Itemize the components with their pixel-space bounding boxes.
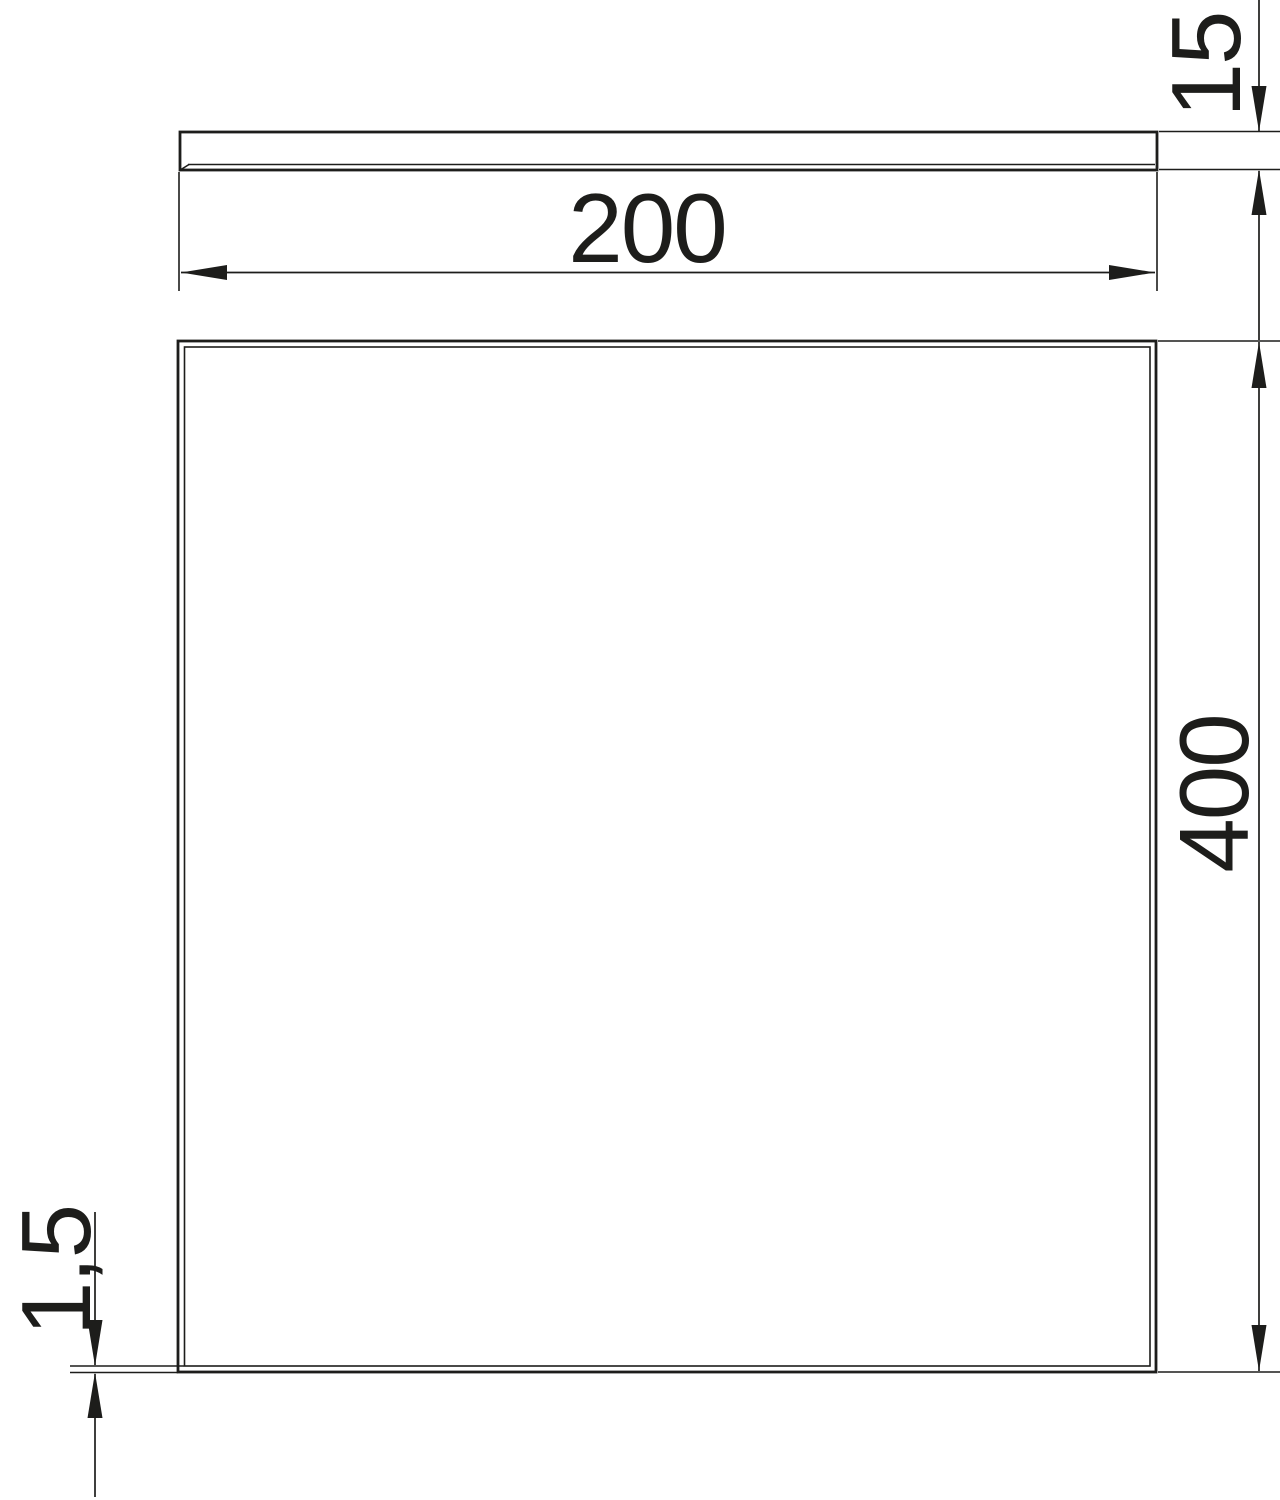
arrowhead-right bbox=[1109, 265, 1155, 280]
top-view bbox=[178, 341, 1156, 1372]
technical-drawing-page: 200 15 400 1,5 bbox=[0, 0, 1280, 1500]
dimension-length-400: 400 bbox=[1158, 341, 1280, 1372]
top-view-outer-outline bbox=[178, 341, 1156, 1372]
dimension-thickness-1-5: 1,5 bbox=[1, 1206, 184, 1497]
arrowhead-down bbox=[1252, 1325, 1267, 1371]
dimension-label-400: 400 bbox=[1159, 715, 1269, 873]
arrowhead-up bbox=[1252, 170, 1267, 216]
dimension-label-1-5: 1,5 bbox=[1, 1206, 111, 1336]
side-view bbox=[180, 132, 1157, 170]
arrowhead-left bbox=[181, 265, 227, 280]
arrowhead-up bbox=[88, 1373, 103, 1419]
top-view-inner-outline bbox=[185, 347, 1151, 1366]
technical-drawing-canvas: 200 15 400 1,5 bbox=[0, 0, 1280, 1500]
dimension-label-200: 200 bbox=[568, 173, 726, 283]
dimension-label-15: 15 bbox=[1151, 12, 1261, 117]
dimension-width-200: 200 bbox=[179, 172, 1157, 291]
arrowhead-up bbox=[1252, 342, 1267, 388]
dimension-height-15: 15 bbox=[1151, 0, 1280, 340]
